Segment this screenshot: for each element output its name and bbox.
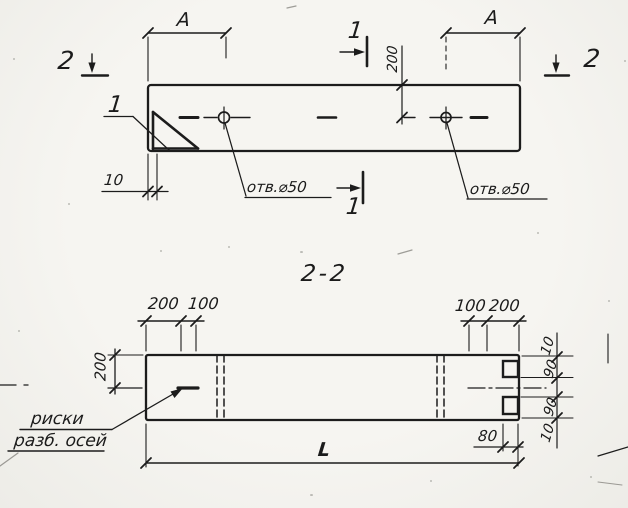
axis-score-lines (217, 355, 444, 420)
dim-a-left (143, 28, 231, 81)
dim-length-l (141, 424, 524, 468)
dim-a-right-label: A (484, 9, 499, 28)
paper-speck (18, 330, 20, 332)
dim-200-left-label: 200 (94, 348, 109, 386)
paper-speck (624, 60, 626, 62)
section-view-title: 2-2 (300, 263, 349, 286)
section-marker-2-right (545, 55, 569, 76)
paper-speck (68, 203, 70, 205)
dim-80-label: 80 (477, 429, 498, 444)
corner-detail-ref-label: 1 (107, 94, 124, 117)
dims-top-left (138, 316, 204, 351)
hole-left-label: отв.⌀50 (246, 180, 307, 195)
paper-speck (608, 300, 610, 302)
paper-speck (310, 494, 313, 496)
dim-200-tr-label: 200 (488, 298, 520, 314)
dim-a-right (441, 28, 525, 81)
section-marker-2-left (82, 54, 108, 76)
beam-outline-section (146, 355, 519, 420)
dim-l-label: L (317, 441, 331, 460)
dim-200-tl-label: 200 (147, 296, 179, 312)
dim-200-plan-label: 200 (386, 41, 400, 76)
paper-speck (430, 480, 432, 482)
axes-label-line1: риски (30, 411, 84, 428)
end-notch-bottom (503, 397, 518, 414)
section-centerlines (0, 385, 546, 388)
paper-speck (160, 250, 162, 252)
blueprint-sheet: A A 2 2 1 1 1 200 отв.⌀50 отв.⌀50 10 2-2… (0, 0, 628, 508)
section-2-right-label: 2 (583, 46, 602, 71)
dim-200-section-left (108, 349, 143, 394)
section-2-left-label: 2 (57, 48, 76, 73)
paper-speck (13, 58, 15, 60)
paper-speck (590, 476, 592, 478)
dim-100-tr-label: 100 (454, 298, 486, 314)
dim-10-label: 10 (103, 173, 124, 188)
section-1-top-label: 1 (347, 20, 364, 43)
paper-speck (228, 246, 230, 248)
paper-speck (300, 251, 303, 253)
corner-detail-leader (104, 117, 170, 152)
dims-top-right (461, 316, 526, 351)
hole-left (219, 107, 230, 129)
scan-artifacts (0, 6, 622, 485)
end-notch-top (503, 361, 518, 377)
hole-right-label: отв.⌀50 (469, 182, 530, 197)
dim-a-left-label: A (176, 11, 191, 30)
paper-speck (537, 232, 539, 234)
top-view (82, 28, 569, 203)
section-1-bottom-label: 1 (345, 196, 362, 219)
axes-label-line2: разб. осей (13, 433, 108, 450)
dim-100-tl-label: 100 (187, 296, 219, 312)
